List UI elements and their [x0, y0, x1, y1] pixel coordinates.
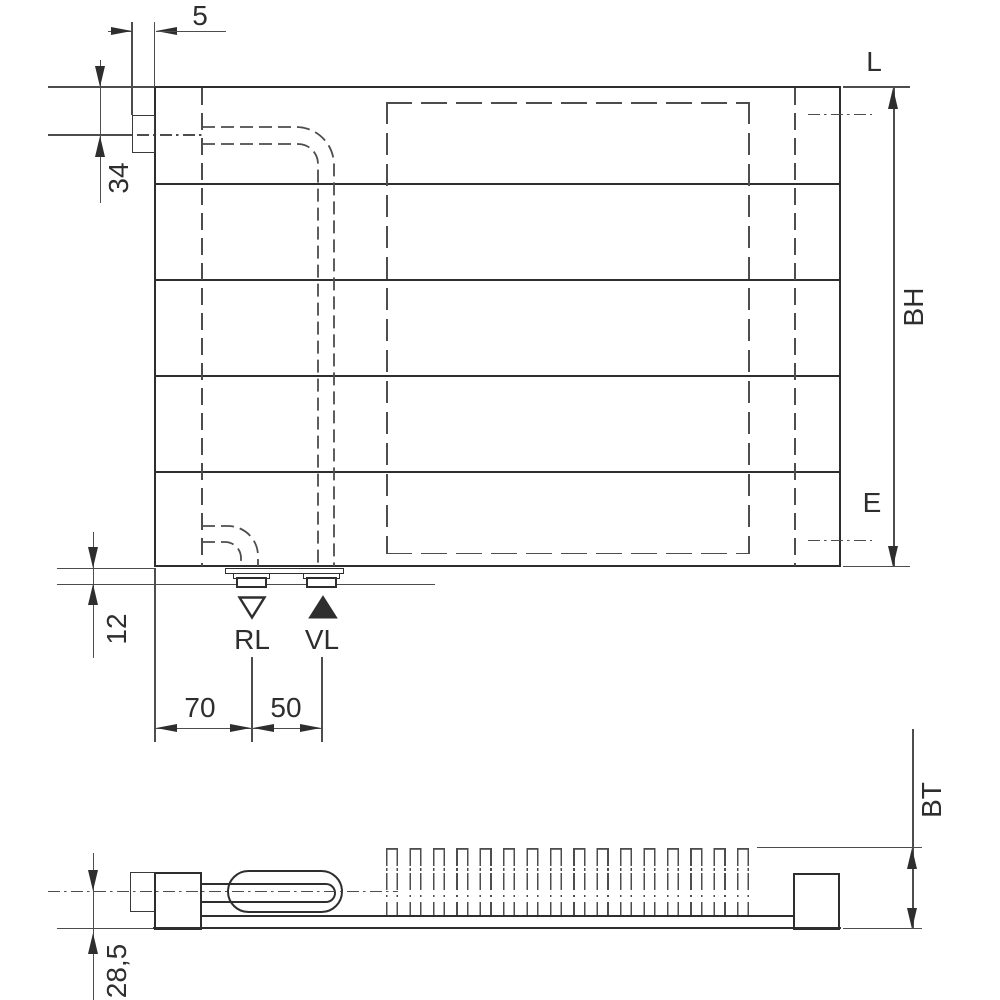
right-end-profile	[793, 873, 840, 930]
panel-back-face-line	[153, 927, 841, 929]
fin-centerline-dots	[386, 895, 750, 898]
arrowhead-down-icon	[88, 870, 98, 891]
pipe-axis-centerline	[48, 891, 398, 892]
arrowhead-up-icon	[907, 848, 917, 869]
fin-centerline-dots	[386, 868, 750, 871]
side-view: BT 28,5	[0, 0, 1000, 1000]
extension-line	[57, 928, 155, 929]
arrowhead-down-icon	[907, 908, 917, 929]
arrowhead-up-icon	[88, 933, 98, 954]
convector-fins	[386, 848, 750, 915]
pipe-tube	[202, 883, 336, 903]
extension-line	[757, 847, 922, 848]
left-end-profile	[154, 872, 202, 930]
dim-axis-to-back: 28,5	[102, 931, 132, 1000]
radiator-technical-drawing: RL VL 5 34 12 70 50	[0, 0, 1000, 1000]
dimension-line	[912, 729, 913, 929]
dim-build-depth: BT	[917, 760, 947, 840]
